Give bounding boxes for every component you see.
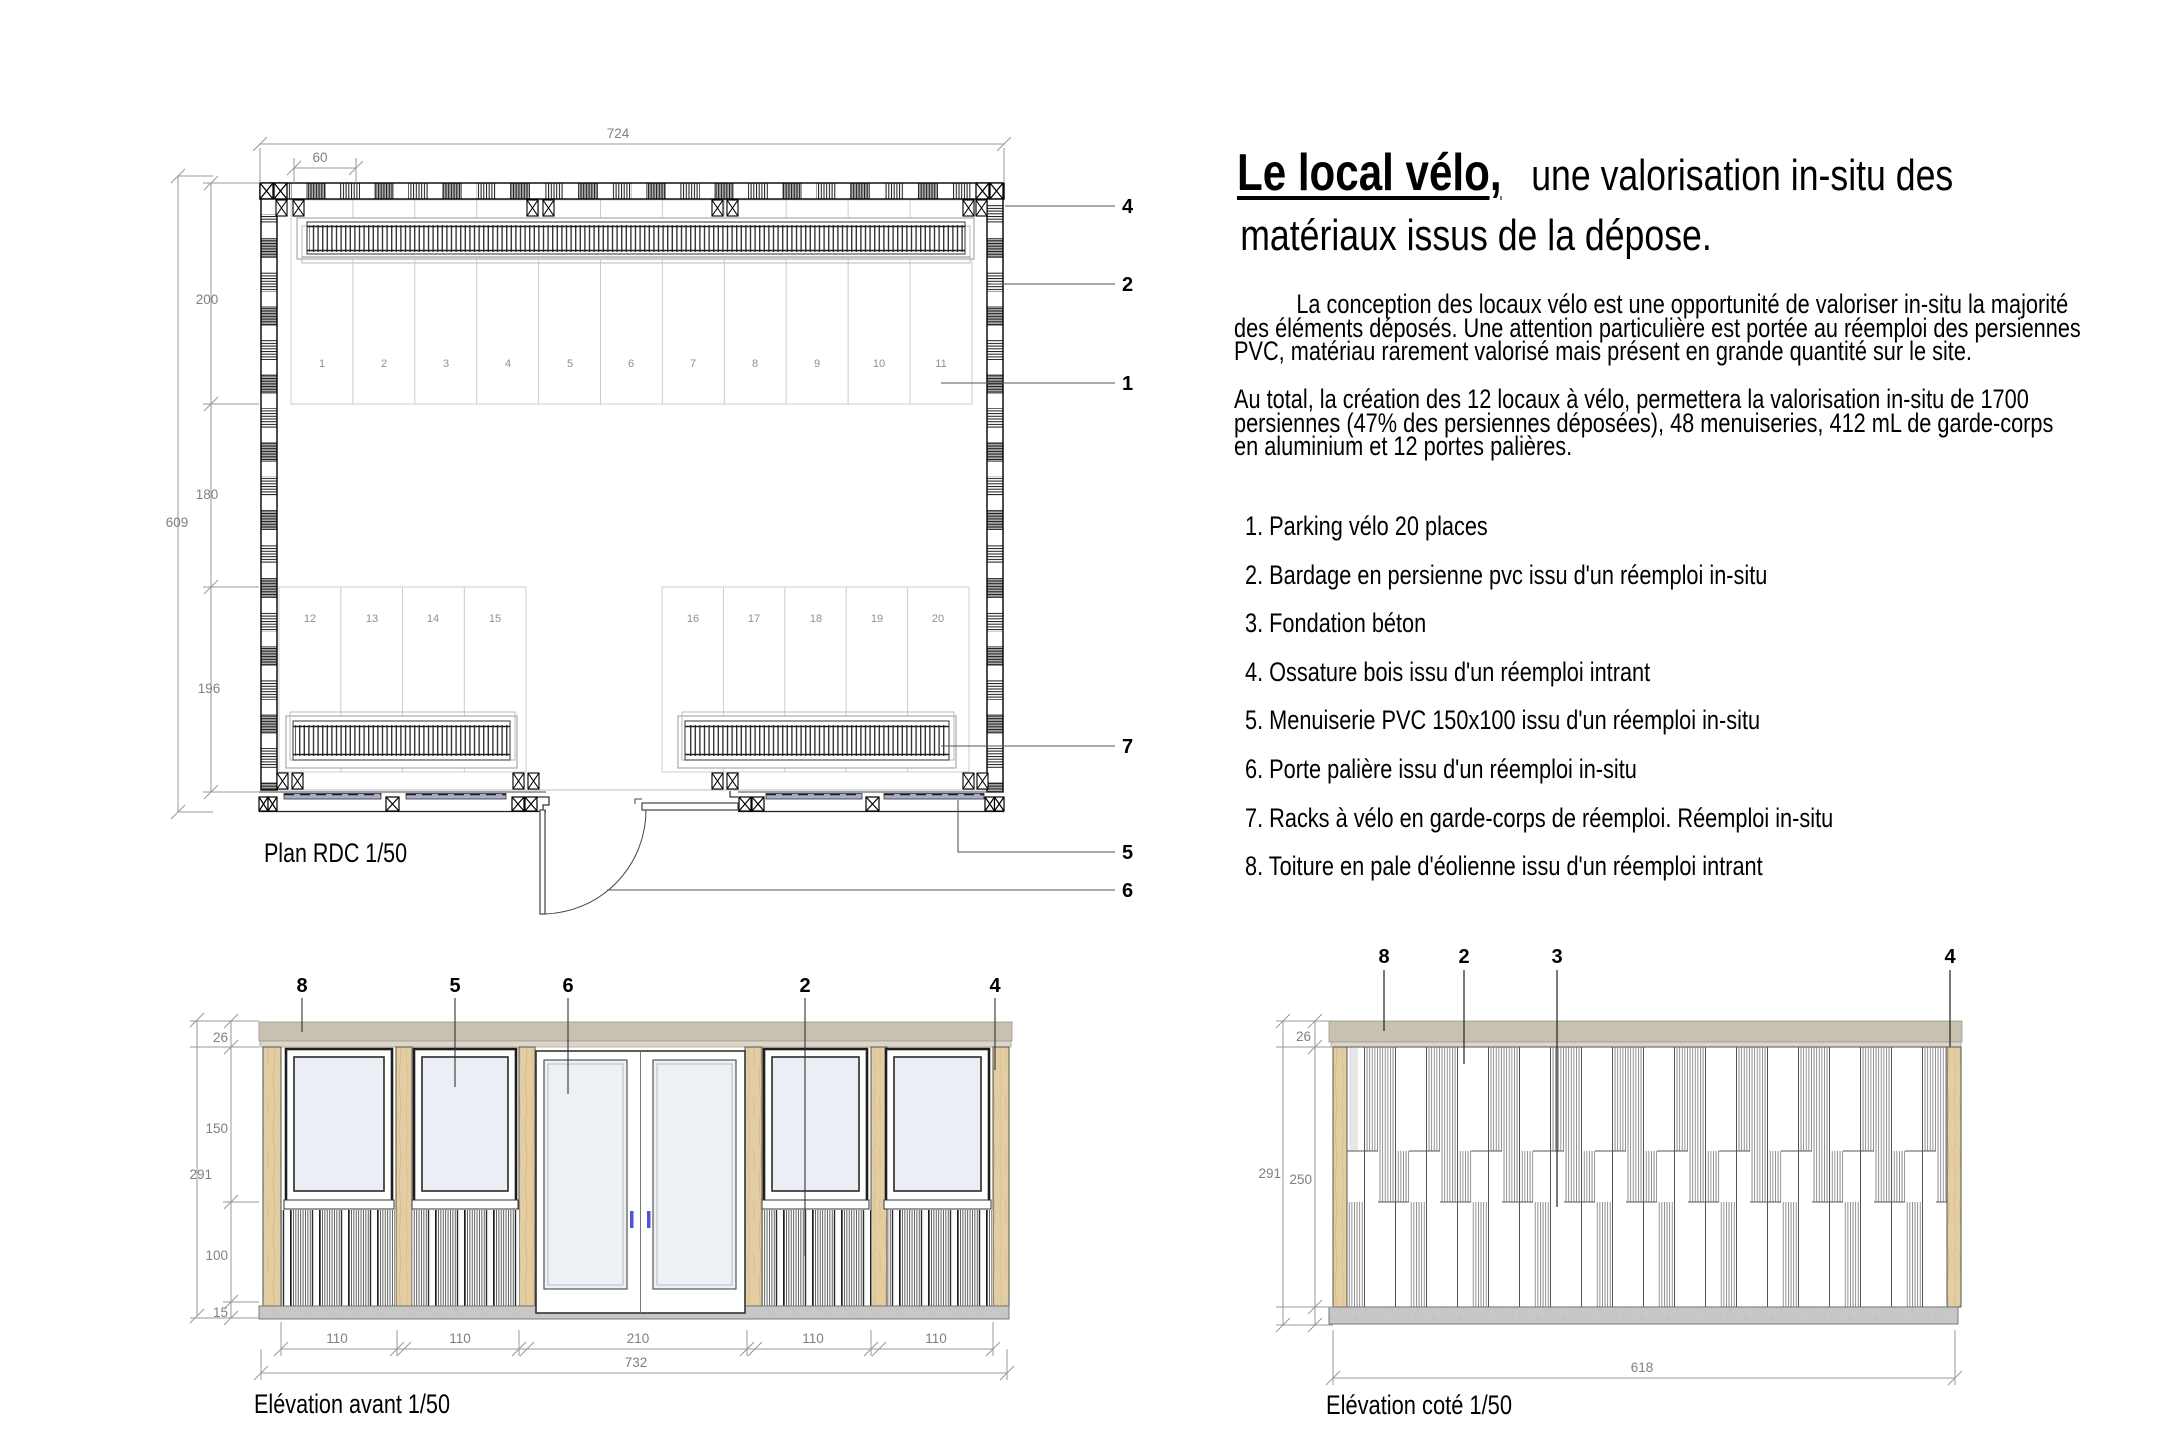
svg-text:4: 4 bbox=[1944, 946, 1956, 968]
svg-text:5: 5 bbox=[449, 975, 460, 997]
svg-text:14: 14 bbox=[427, 613, 439, 625]
svg-text:732: 732 bbox=[625, 1355, 648, 1370]
svg-text:20: 20 bbox=[932, 613, 944, 625]
svg-text:2: 2 bbox=[381, 358, 387, 370]
svg-text:3: 3 bbox=[443, 358, 449, 370]
svg-text:9: 9 bbox=[814, 358, 820, 370]
svg-text:2: 2 bbox=[1122, 274, 1133, 296]
svg-text:7: 7 bbox=[690, 358, 696, 370]
svg-text:609: 609 bbox=[166, 515, 189, 530]
svg-text:291: 291 bbox=[189, 1167, 212, 1182]
svg-text:180: 180 bbox=[196, 487, 219, 502]
svg-text:8: 8 bbox=[752, 358, 758, 370]
svg-text:110: 110 bbox=[449, 1331, 471, 1346]
svg-text:8: 8 bbox=[1378, 946, 1389, 968]
svg-text:4: 4 bbox=[1122, 196, 1134, 218]
svg-text:17: 17 bbox=[748, 613, 760, 625]
svg-text:5: 5 bbox=[1122, 842, 1133, 864]
svg-text:6: 6 bbox=[628, 358, 634, 370]
svg-text:3: 3 bbox=[1551, 946, 1562, 968]
svg-text:210: 210 bbox=[627, 1331, 650, 1346]
svg-text:618: 618 bbox=[1631, 1360, 1654, 1375]
svg-text:11: 11 bbox=[935, 358, 946, 370]
svg-text:1: 1 bbox=[1122, 373, 1133, 395]
svg-text:150: 150 bbox=[205, 1121, 228, 1136]
svg-text:8: 8 bbox=[296, 975, 307, 997]
svg-text:7: 7 bbox=[1122, 736, 1133, 758]
svg-text:6: 6 bbox=[562, 975, 573, 997]
svg-text:19: 19 bbox=[871, 613, 883, 625]
svg-text:110: 110 bbox=[925, 1331, 947, 1346]
svg-text:6: 6 bbox=[1122, 880, 1133, 902]
svg-text:18: 18 bbox=[810, 613, 822, 625]
svg-text:26: 26 bbox=[213, 1030, 228, 1045]
svg-text:110: 110 bbox=[802, 1331, 824, 1346]
svg-text:13: 13 bbox=[366, 613, 378, 625]
svg-text:15: 15 bbox=[489, 613, 501, 625]
svg-text:60: 60 bbox=[312, 150, 327, 165]
svg-text:100: 100 bbox=[205, 1248, 228, 1263]
svg-text:10: 10 bbox=[873, 358, 885, 370]
svg-text:26: 26 bbox=[1296, 1029, 1311, 1044]
svg-text:5: 5 bbox=[567, 358, 573, 370]
svg-text:1: 1 bbox=[319, 358, 325, 370]
svg-text:196: 196 bbox=[198, 681, 221, 696]
svg-text:250: 250 bbox=[1289, 1172, 1312, 1187]
svg-text:4: 4 bbox=[505, 358, 511, 370]
svg-text:2: 2 bbox=[1458, 946, 1469, 968]
svg-text:291: 291 bbox=[1258, 1166, 1281, 1181]
svg-text:Elévation avant 1/50: Elévation avant 1/50 bbox=[254, 1389, 450, 1419]
svg-text:16: 16 bbox=[687, 613, 699, 625]
svg-text:Elévation coté 1/50: Elévation coté 1/50 bbox=[1326, 1390, 1512, 1420]
svg-text:Plan RDC 1/50: Plan RDC 1/50 bbox=[264, 838, 407, 868]
svg-text:200: 200 bbox=[196, 292, 219, 307]
svg-text:724: 724 bbox=[607, 126, 630, 141]
svg-text:2: 2 bbox=[799, 975, 810, 997]
svg-text:15: 15 bbox=[213, 1305, 228, 1320]
svg-text:12: 12 bbox=[304, 613, 316, 625]
svg-text:110: 110 bbox=[326, 1331, 348, 1346]
svg-text:4: 4 bbox=[989, 975, 1001, 997]
